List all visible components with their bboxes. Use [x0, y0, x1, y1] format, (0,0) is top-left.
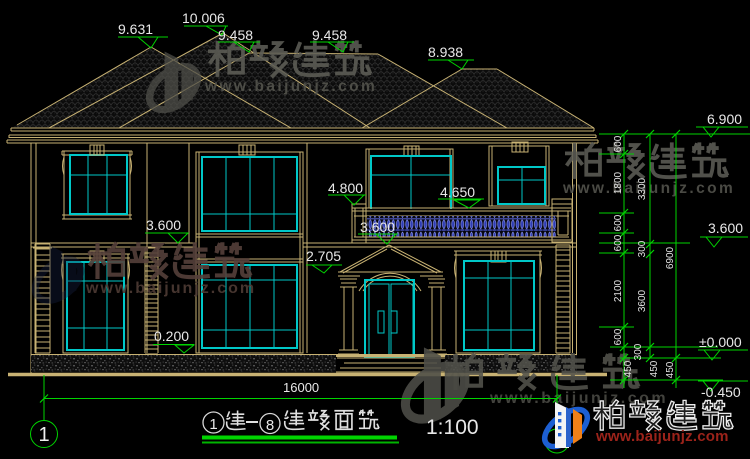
svg-text:4.800: 4.800 [328, 180, 363, 196]
svg-text:4.650: 4.650 [440, 184, 475, 200]
svg-text:3.600: 3.600 [146, 217, 181, 233]
svg-text:600: 600 [613, 234, 624, 251]
svg-text:3300: 3300 [637, 177, 648, 200]
svg-text:-0.450: -0.450 [701, 384, 741, 400]
svg-text:0.200: 0.200 [154, 328, 189, 344]
svg-text:1: 1 [38, 424, 49, 446]
svg-text:1800: 1800 [613, 171, 624, 194]
svg-text:8.938: 8.938 [428, 44, 463, 60]
svg-text:1: 1 [209, 416, 217, 433]
svg-text:450: 450 [665, 361, 676, 378]
svg-text:9.458: 9.458 [218, 27, 253, 43]
svg-text:16000: 16000 [283, 380, 319, 395]
svg-text:450: 450 [649, 360, 660, 377]
svg-text:www.baijunjz.com: www.baijunjz.com [85, 280, 256, 297]
svg-text:600: 600 [613, 214, 624, 231]
svg-text:600: 600 [613, 135, 624, 152]
svg-text:3.600: 3.600 [360, 219, 395, 235]
svg-text:300: 300 [633, 343, 644, 360]
svg-text:9.458: 9.458 [312, 27, 347, 43]
svg-text:8: 8 [266, 417, 274, 434]
svg-text:2100: 2100 [613, 279, 624, 302]
svg-text:10.006: 10.006 [182, 10, 225, 26]
svg-text:6900: 6900 [665, 246, 676, 269]
svg-text:1:100: 1:100 [426, 416, 479, 439]
svg-text:300: 300 [637, 240, 648, 257]
svg-text:www.baijunjz.com: www.baijunjz.com [562, 180, 735, 197]
svg-text:6.900: 6.900 [707, 111, 742, 127]
svg-text:www.baijunjz.com: www.baijunjz.com [204, 78, 377, 95]
svg-text:www.baijunjz.com: www.baijunjz.com [595, 428, 729, 445]
svg-text:3.600: 3.600 [708, 220, 743, 236]
svg-text:600: 600 [613, 328, 624, 345]
svg-text:±0.000: ±0.000 [699, 334, 742, 350]
svg-text:9.631: 9.631 [118, 21, 153, 37]
svg-text:3600: 3600 [637, 289, 648, 312]
svg-text:450: 450 [623, 360, 634, 377]
svg-text:2.705: 2.705 [306, 248, 341, 264]
